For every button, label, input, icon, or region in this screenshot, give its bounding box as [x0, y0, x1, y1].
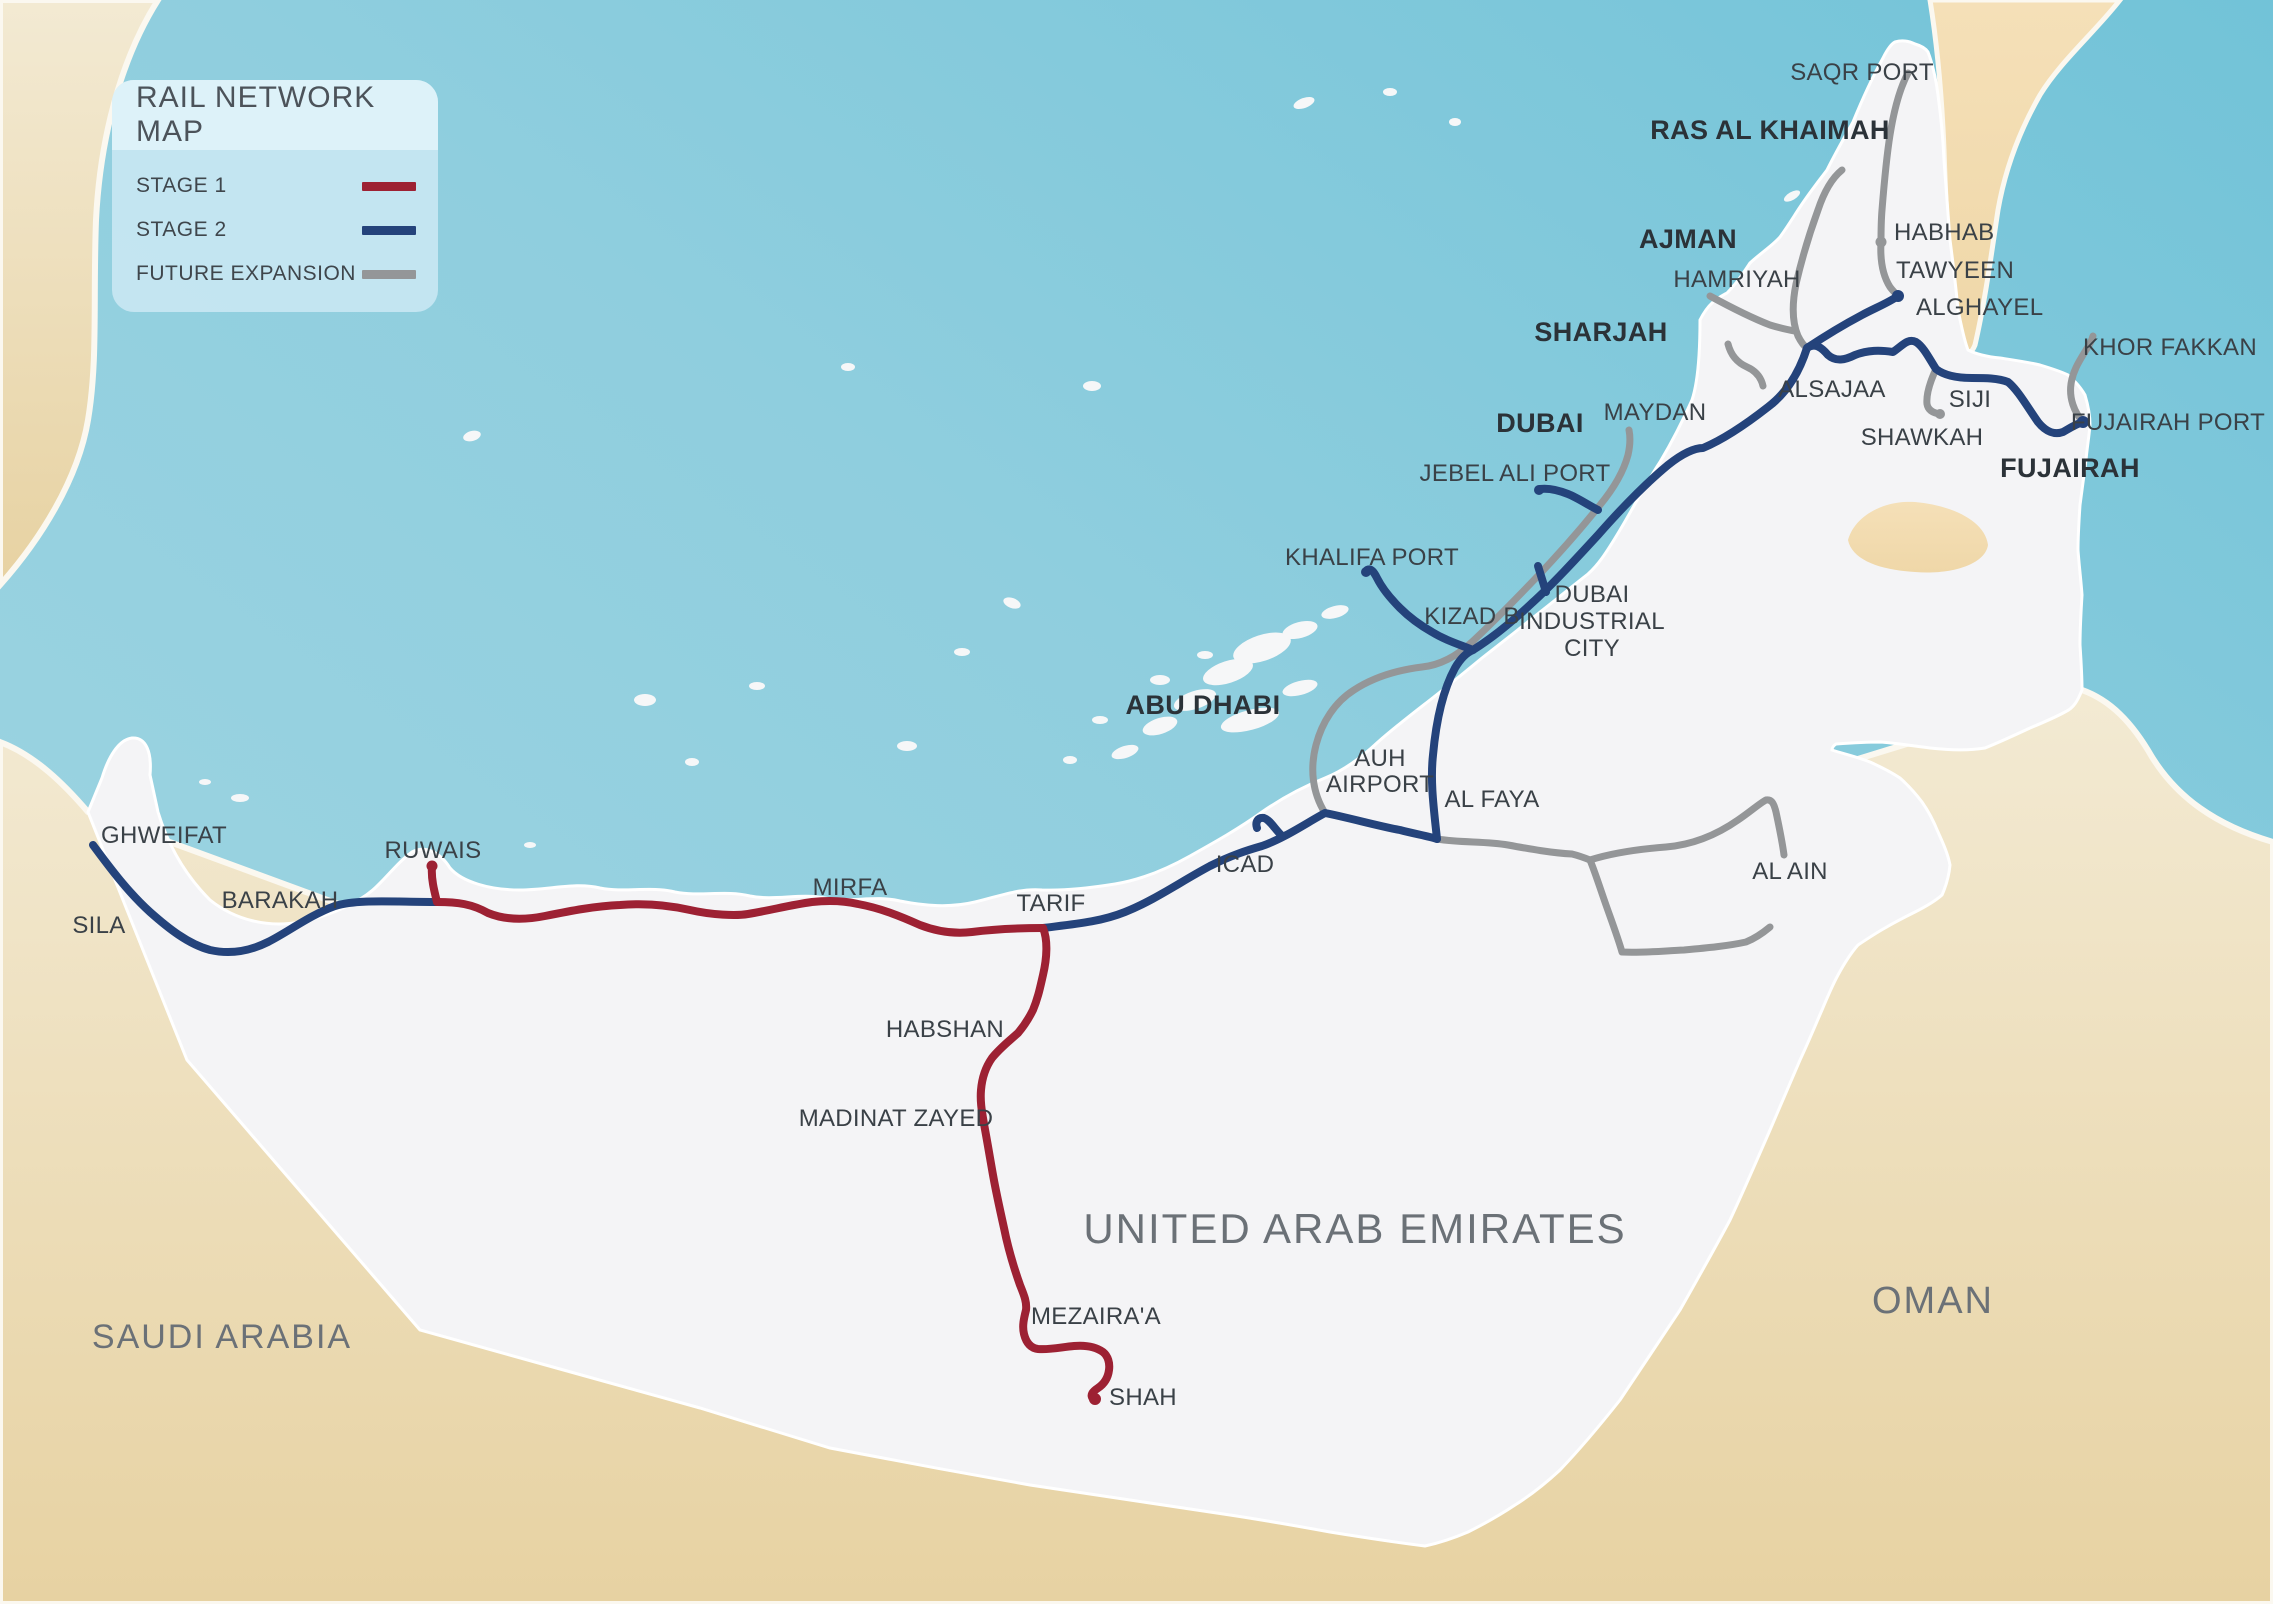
station-label-auh-airport-line2: AIRPORT: [1326, 771, 1434, 798]
station-label-alghayel: ALGHAYEL: [1916, 294, 2043, 321]
station-label-sila: SILA: [72, 912, 125, 939]
station-label-mezairaa: MEZAIRA'A: [1031, 1303, 1161, 1330]
city-label-abu-dhabi: ABU DHABI: [1125, 690, 1280, 720]
station-label-shawkah: SHAWKAH: [1861, 424, 1984, 451]
legend-item-future-label: FUTURE EXPANSION: [136, 262, 356, 286]
country-label-oman: OMAN: [1872, 1280, 1994, 1322]
legend-panel: RAIL NETWORK MAP STAGE 1 STAGE 2 FUTURE …: [112, 80, 438, 312]
legend-rows: STAGE 1 STAGE 2 FUTURE EXPANSION: [112, 150, 438, 296]
station-label-tawyeen: TAWYEEN: [1896, 257, 2014, 284]
station-label-barakah: BARAKAH: [222, 887, 339, 914]
city-label-fujairah: FUJAIRAH: [2000, 453, 2140, 483]
legend-item-stage1-label: STAGE 1: [136, 174, 227, 198]
station-label-ghweifat: GHWEIFAT: [101, 822, 227, 849]
legend-title: RAIL NETWORK MAP: [136, 81, 438, 149]
city-label-ras-al-khaimah: RAS AL KHAIMAH: [1650, 115, 1890, 145]
legend-swatch-future: [362, 270, 416, 279]
station-label-hamriyah: HAMRIYAH: [1673, 266, 1800, 293]
shah-dot: [1089, 1393, 1101, 1405]
station-label-dic-line1: DUBAI: [1555, 581, 1630, 608]
station-label-icad: ICAD: [1216, 851, 1275, 878]
station-label-siji: SIJI: [1949, 386, 1992, 413]
legend-swatch-stage2: [362, 226, 416, 235]
station-label-jebel-ali-port: JEBEL ALI PORT: [1420, 460, 1611, 487]
legend-swatch-stage1: [362, 182, 416, 191]
station-label-al-faya: AL FAYA: [1444, 786, 1539, 813]
rail-network-map: UNITED ARAB EMIRATES SAUDI ARABIA OMAN A…: [0, 0, 2273, 1604]
station-label-fujairah-port: FUJAIRAH PORT: [2071, 409, 2265, 436]
station-label-habshan: HABSHAN: [886, 1016, 1004, 1043]
country-label-uae: UNITED ARAB EMIRATES: [1083, 1205, 1626, 1252]
alghayel-dot: [1892, 290, 1904, 302]
station-label-kizad-b: KIZAD B: [1424, 603, 1519, 630]
station-label-tarif: TARIF: [1016, 890, 1085, 917]
station-label-dic-line3: CITY: [1564, 635, 1620, 662]
station-label-maydan: MAYDAN: [1604, 399, 1707, 426]
legend-item-future: FUTURE EXPANSION: [136, 252, 416, 296]
station-label-khor-fakkan: KHOR FAKKAN: [2083, 334, 2257, 361]
city-label-dubai: DUBAI: [1496, 408, 1584, 438]
station-label-habhab: HABHAB: [1894, 219, 1995, 246]
station-label-saqr-port: SAQR PORT: [1790, 59, 1934, 86]
country-label-saudi-arabia: SAUDI ARABIA: [92, 1318, 352, 1356]
habhab-dot: [1876, 237, 1887, 248]
station-label-madinat-zayed: MADINAT ZAYED: [799, 1105, 994, 1132]
station-label-ruwais: RUWAIS: [385, 837, 482, 864]
station-label-mirfa: MIRFA: [813, 874, 888, 901]
legend-item-stage1: STAGE 1: [136, 164, 416, 208]
station-label-auh-airport-line1: AUH: [1354, 745, 1406, 772]
city-label-sharjah: SHARJAH: [1534, 317, 1667, 347]
legend-item-stage2-label: STAGE 2: [136, 218, 227, 242]
legend-item-stage2: STAGE 2: [136, 208, 416, 252]
station-label-dic-line2: INDUSTRIAL: [1519, 608, 1665, 635]
station-label-khalifa-port: KHALIFA PORT: [1285, 544, 1459, 571]
city-label-ajman: AJMAN: [1639, 224, 1737, 254]
legend-header: RAIL NETWORK MAP: [112, 80, 438, 150]
station-label-shah: SHAH: [1109, 1384, 1177, 1411]
shawkah-dot: [1935, 409, 1945, 419]
station-label-alsajaa: ALSAJAA: [1778, 376, 1886, 403]
station-label-al-ain: AL AIN: [1752, 858, 1828, 885]
